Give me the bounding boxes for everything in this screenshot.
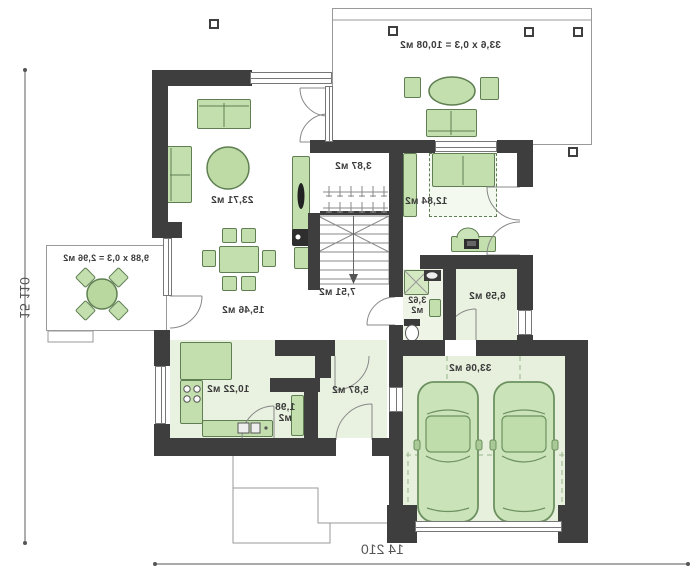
car-left [414,382,482,522]
wall-segment [403,340,445,356]
window [435,141,497,152]
wall-segment [270,378,320,392]
window [155,366,166,424]
wall-segment [443,269,456,340]
wardrobe-hangers [323,186,388,213]
wall-segment [558,505,588,543]
window [163,238,172,296]
window [250,72,332,84]
pergola-post [524,27,534,37]
wall-segment [152,70,168,238]
wall-segment [312,438,336,456]
pergola-post [209,19,219,29]
wall-segment [389,412,403,438]
pergola-post [573,27,583,37]
desk-chair [457,228,479,249]
tv-icon [298,183,305,209]
wall-segment [517,140,533,187]
wall-segment [389,269,403,297]
window [389,387,403,412]
wall-segment [154,330,170,366]
wall-segment [389,325,403,340]
terrace-table [429,77,475,105]
wall-segment [315,340,331,378]
wall-segment [308,213,320,290]
wall-segment [387,505,417,543]
window [518,310,532,335]
wall-segment [389,438,403,508]
garage-door-opening [415,521,562,532]
left-terrace-table [87,279,117,309]
pergola-post [568,147,578,157]
stairs [318,211,389,284]
living-rug [207,147,249,189]
car-right [490,382,558,522]
wall-segment [154,438,312,456]
floor-plan-canvas: 23,71 м2 15,46 м2 10,22 м2 1,98м2 5,87 м… [0,0,700,576]
window [325,86,333,142]
wall-segment [152,222,182,238]
pergola-post [388,26,398,36]
wall-segment [565,340,588,510]
wall-segment [517,255,533,310]
wall-segment [389,140,403,269]
wall-segment [389,340,403,387]
fireplace-dot [296,235,301,240]
wall-segment [304,392,318,440]
wall-segment [420,255,530,269]
